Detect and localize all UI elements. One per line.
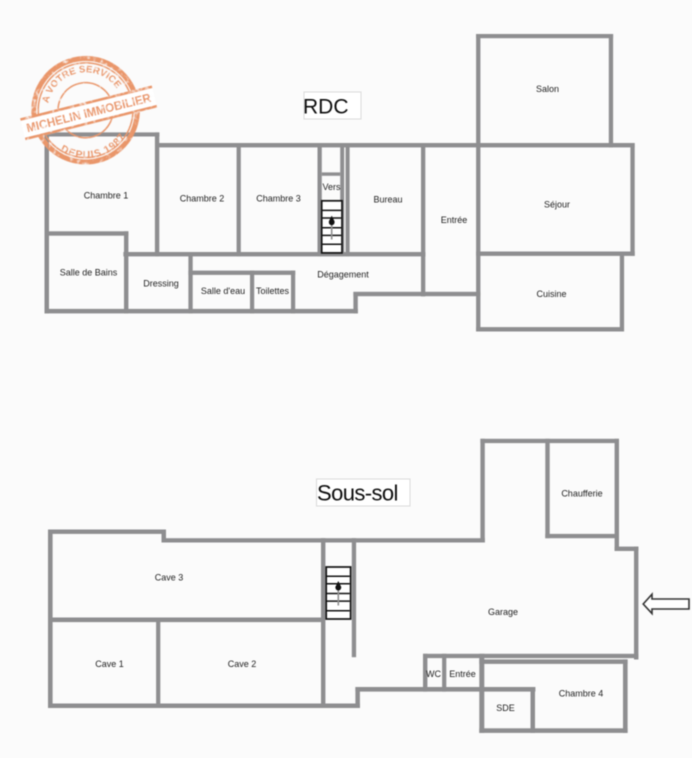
svg-text:Chambre 2: Chambre 2 <box>180 194 225 204</box>
svg-text:SDE: SDE <box>496 703 515 713</box>
svg-text:Chambre 1: Chambre 1 <box>84 191 129 201</box>
svg-text:Dégagement: Dégagement <box>317 270 369 280</box>
svg-text:Séjour: Séjour <box>544 200 570 210</box>
svg-text:Cave 3: Cave 3 <box>155 573 184 583</box>
svg-text:Entrée: Entrée <box>441 215 468 225</box>
svg-text:Cuisine: Cuisine <box>536 289 566 299</box>
svg-text:Bureau: Bureau <box>373 195 402 205</box>
svg-text:Sous-sol: Sous-sol <box>317 481 398 506</box>
svg-text:Chambre 3: Chambre 3 <box>256 194 301 204</box>
svg-text:Chaufferie: Chaufferie <box>561 489 602 499</box>
svg-text:Salle de Bains: Salle de Bains <box>60 268 118 278</box>
svg-text:Salon: Salon <box>536 84 559 94</box>
svg-text:WC: WC <box>426 669 441 679</box>
svg-text:Garage: Garage <box>488 607 518 617</box>
svg-text:RDC: RDC <box>303 96 349 119</box>
svg-text:Salle d'eau: Salle d'eau <box>201 286 245 296</box>
svg-text:Dressing: Dressing <box>143 279 179 289</box>
svg-text:Entrée: Entrée <box>449 669 476 679</box>
svg-text:Cave 1: Cave 1 <box>95 659 124 669</box>
svg-text:Cave 2: Cave 2 <box>228 659 257 669</box>
svg-text:Vers: Vers <box>322 182 341 192</box>
svg-text:Chambre 4: Chambre 4 <box>559 689 604 699</box>
svg-text:Toilettes: Toilettes <box>256 286 290 296</box>
